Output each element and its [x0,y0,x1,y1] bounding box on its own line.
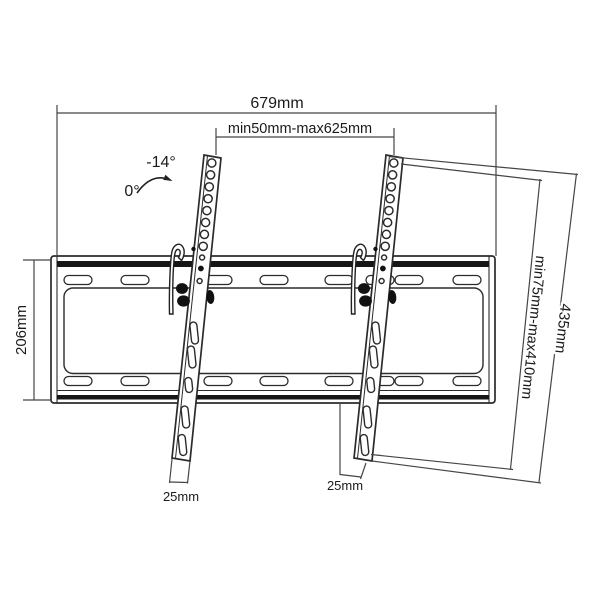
dim-left-offset [170,459,191,484]
tilt-max-label: -14° [146,154,176,171]
tv-wall-mount-diagram: -14° 0° 679mm min50mm-max625mm 206mm min… [0,0,600,600]
plate-bottom-shadow-band [57,395,489,400]
diagram-canvas: -14° 0° 679mm min50mm-max625mm 206mm min… [0,0,600,600]
rail-length-label: 435mm [551,303,574,355]
lock-knob [359,295,372,306]
lock-knob [358,283,370,294]
rail-spacing-label: min50mm-max625mm [228,121,372,137]
plate-top-shadow-band [57,261,489,267]
right-offset-label: 25mm [327,478,363,493]
plate-height-label: 206mm [13,305,30,355]
tilt-arrowhead [163,175,172,181]
rail-range-label: min75mm-max410mm [518,255,548,400]
tilt-annotation: -14° 0° [124,154,175,200]
left-offset-label: 25mm [163,489,199,504]
tilt-min-label: 0° [124,183,139,200]
total-width-label: 679mm [250,95,303,112]
lock-knob [177,295,190,306]
lock-knob [176,283,188,294]
wall-plate [51,256,495,403]
